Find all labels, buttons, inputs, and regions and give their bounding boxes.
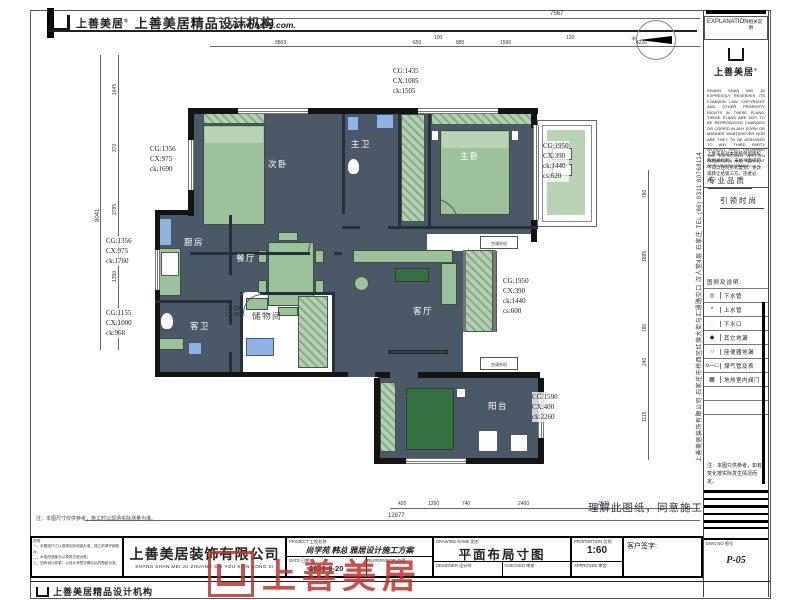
partition-wall [428,226,538,229]
window-spec-annotation: CG:1155CX:1000ck:968 [106,308,132,338]
legend-row: ○座便器地漏 [704,344,768,358]
partition-wall [334,252,342,255]
pillows [205,127,263,143]
dim-label: 240 [642,358,648,366]
window-mullion [418,111,498,112]
dim-total-left: 9041 [95,209,101,222]
dwg-no-cell: DWG.NO 图号 P-05 [704,538,768,580]
legend-symbol: · [704,321,721,327]
window-spec-annotation: CG:1356CX:975ck:1760 [106,236,132,266]
wall [380,372,390,378]
kitchen-sink [159,218,172,246]
dwg-no-value: P-05 [704,555,768,566]
slogan-bottom: 引领时尚 [720,195,764,209]
title-block-note-line: 三、如有设计变更，以设计师签字确认后的图纸为准。 [33,561,121,566]
window [406,458,466,464]
wardrobe [431,113,533,125]
toilet [160,312,174,330]
partition-wall [342,226,360,229]
signature-bar [704,513,768,515]
plant [354,276,369,291]
window-spec-annotation: CG:1356CX:975ck:1690 [150,144,176,174]
partition-wall [428,114,431,226]
dim-line [210,46,700,47]
brand-name: 上善美居® [76,15,129,31]
dim-line [648,170,649,460]
address-vertical: 上善美居装饰有限公司 石家庄市桥西区红旗大街与汇通路交口 汉人堂4层 石家庄 T… [694,62,703,462]
dim-label: 1590 [500,40,511,46]
nightstand [431,130,439,141]
window [463,250,466,332]
chair [278,232,298,241]
dim-label: 120 [566,35,574,41]
wall [374,458,406,464]
legend-row: o—□煤气管及表 [704,358,768,372]
nightstand [456,388,466,398]
dim-label: 1115 [642,412,648,422]
room-label: 客卫 [190,320,210,332]
window [188,140,194,190]
dim-total-top: 7567 [550,11,563,17]
dim-label: 650 [413,40,421,46]
dim-label: 2460 [518,501,529,507]
dim-label: 420 [398,501,406,507]
legend-table: ◎下水管*上水管·下水口◆其它地漏○座便器地漏o—□煤气管及表▦地热室内阀门 [704,288,768,415]
legend-row: ·下水口 [704,316,768,330]
dim-label: 885 [456,40,464,46]
dim-label: 740 [462,501,470,507]
wall [466,458,544,464]
window-mullion [191,140,192,190]
partition-wall [240,292,243,372]
pillows [442,132,508,148]
legend-symbol: ○ [704,349,721,355]
proportion-label: PROPORTION 比例 [572,538,622,545]
dwg-no-label: DWG.NO 图号 [704,540,768,547]
window-mullion [464,250,465,332]
balcony-planter [465,250,493,332]
storage-dim-note: LK:200LS:2475 [226,306,245,318]
panel-logo: 上善美居® [704,48,768,78]
panel-brand: 上善美居® [704,65,768,78]
legend-symbol: ◆ [704,334,721,341]
explanation-panel: EXPLANATION 相关说明 上善美居® SHANG SHAN MEI JU… [703,10,769,597]
slogan: 专业品质 引领时尚 [704,175,768,209]
slogan-top: 专业品质 [708,175,752,189]
wall [418,372,540,378]
explanation-subtitle: 相关说明 [749,19,765,31]
partition-wall [342,114,345,214]
legend-row [704,400,768,414]
ac-unit-box: 空调外机 [480,357,518,370]
header-rule [48,30,697,32]
dim-line [85,520,700,521]
wall [538,438,544,464]
consent-text: 理解此图纸，同意施工 [588,500,703,515]
explanation-title: EXPLANATION [707,19,749,25]
proportion-cell: PROPORTION 比例 1:60 APPROVED 审定 [572,538,624,576]
drawing-name-cell: DRAWING NAME 图名 平面布局寸图 DESIGNER 设计师 CHEC… [434,538,572,576]
panel-top-mark [706,10,766,14]
toilet [347,158,360,175]
window-mullion [238,111,308,112]
window [238,108,308,114]
partition-wall [398,114,401,226]
legend-title: 图例及说明: [704,278,768,286]
project-label: PROJECT 工程名称 [287,538,432,545]
stamp-text: 上善美居 [262,549,422,598]
approved-label: APPROVED 审定 [572,562,622,569]
designer-label: DESIGNER 设计师 [434,562,502,569]
dim-label: 1350 [112,271,118,282]
room-label: 主卫 [351,138,371,150]
sofa [353,250,453,263]
wall [155,372,348,377]
legend-label: 座便器地漏 [721,348,754,356]
window [155,250,160,290]
title-block-note-line: 一、本图纸尺寸以现场实际测量为准，施工前请仔细核对； [33,544,121,555]
partition-wall [332,292,335,372]
room-label: 储物间 [252,310,282,322]
closet [401,114,425,222]
partition-wall [155,300,229,303]
room-label: 客厅 [413,305,433,317]
dim-line [118,55,119,350]
dim-line [210,18,700,19]
dim-label: 4220 [636,40,647,46]
legend-row: ◎下水管 [704,288,768,302]
checked-label: CHECKED 审核 [503,562,571,569]
bathroom-sink [347,116,359,131]
legend-label: 其它地漏 [721,334,748,342]
window-mullion [494,250,495,332]
dim-label: 1645 [112,84,118,95]
legend-symbol: o—□ [704,363,721,369]
signature-cell: 客户签字: [624,538,705,576]
website-link: www.lhs99.com. [230,20,296,31]
room-label: 主卧 [460,150,480,162]
dim-label: 100 [434,35,442,41]
nightstand [511,130,519,141]
legend-label: 下水管 [721,292,742,300]
company-stamp: 上善美居 [208,549,422,598]
brand-logo-icon [50,15,70,31]
washbasin [158,338,184,350]
legend-symbol: * [704,307,721,313]
legend-label: 地热室内阀门 [721,376,760,384]
drawing-name: 平面布局寸图 [434,544,570,563]
signature-bar [704,520,768,523]
chaise [441,263,457,305]
legend-row: ▦地热室内阀门 [704,372,768,386]
room-label: 阳台 [488,400,508,412]
window-mullion [406,461,466,462]
partition-wall [229,352,232,372]
dim-total-bottom: 12877 [388,513,405,519]
bath-fixture [188,342,202,355]
signature-bar [704,527,768,529]
dim-label: 370 [112,144,118,152]
tv-stand [388,350,448,354]
note-above-block: 注：本图尺寸仅供参考，施工时以现场实际测量为准。 [36,515,156,522]
window [493,250,496,332]
explanation-header: EXPLANATION 相关说明 [704,16,768,40]
proportion-value: 1:60 [572,545,622,556]
dim-label: 1885 [642,251,648,262]
footer-logo: 上善美居精品设计机构 [36,585,153,598]
brand-logo-icon [36,587,49,597]
storage-mat [246,338,274,356]
wall [155,210,160,377]
stamp-logo-icon [217,564,245,586]
legend-row [704,386,768,400]
window-spec-annotation: CG:1590CX:400ck:2260 [532,392,558,422]
dim-line [100,55,101,350]
panel-side-mark [762,302,765,484]
partition-wall [388,226,428,229]
dim-label: 3863 [275,40,286,46]
legend-label: 煤气管及表 [721,362,754,370]
legend-label: 上水管 [721,306,742,314]
footer-agency: 上善美居精品设计机构 [53,585,153,598]
wardrobe [380,382,396,452]
signature-label: 客户签字: [624,538,705,554]
legend-row: *上水管 [704,302,768,316]
legend-symbol: ▦ [704,376,721,383]
signature-bar [704,490,768,493]
partition-wall [260,292,332,295]
wall [531,220,537,242]
dim-label: 780 [642,190,648,198]
ac-unit-box: 空调外机 [480,236,518,249]
room-label: 次卧 [268,158,288,170]
window-spec-annotation: CG:1950CX:390ck:1440cs:600 [503,276,529,317]
dim-label: 2785 [112,204,118,215]
partition-wall [229,215,232,275]
notes-cell: 说明：一、本图纸尺寸以现场实际测量为准，施工前请仔细核对；二、水电改造部分以现场… [32,538,124,576]
legend-label: 下水口 [721,320,742,328]
window-mullion [157,250,158,290]
window-spec-annotation: CG:1950CX:390ck:1440cs:620 [543,141,569,182]
dim-label: 1260 [428,501,439,507]
legend-symbol: ◎ [704,292,721,299]
wall [374,378,380,462]
washing-machine [478,430,498,452]
panel-note: 注：本图只供参考，如有变化按实际发生情况而定。 [704,460,768,488]
wall [155,210,194,215]
cabinet [510,434,528,452]
window [533,125,539,220]
brand-logo-icon [728,48,744,61]
legend-row: ◆其它地漏 [704,330,768,344]
stove [161,252,179,276]
dim-label: 780 [642,324,648,332]
signature-bar [704,505,768,508]
storage-shelves [298,296,328,368]
shower [376,114,394,129]
drawing-sheet: 上善美居® 上善美居精品设计机构 www.lhs99.com. ✳ 7567 9… [0,0,800,600]
window-mullion [536,125,537,220]
room-label: 餐厅 [236,252,256,264]
window-spec-annotation: CG:1435CX:1085ck:1505 [393,66,419,96]
room-label: 厨房 [184,236,204,248]
signature-bar [704,498,768,500]
window [418,108,498,114]
coffee-table [395,268,429,282]
